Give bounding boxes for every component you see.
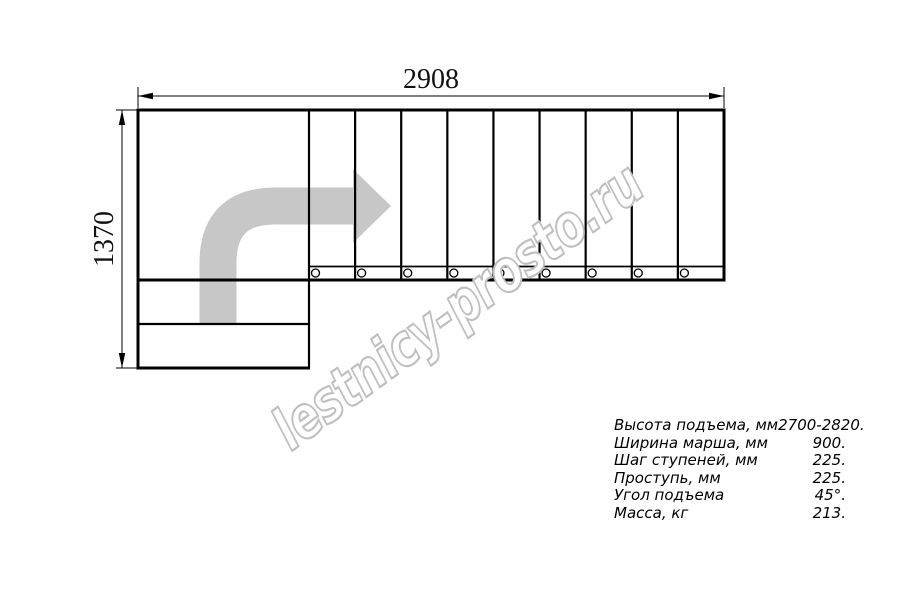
spec-label: Ширина марша, мм xyxy=(614,435,768,453)
baluster-circle xyxy=(680,269,688,277)
baluster-circle xyxy=(634,269,642,277)
spec-value: 225. xyxy=(813,470,846,488)
travel-arrow-shaft xyxy=(218,206,353,325)
spec-row: Ширина марша, мм 900. xyxy=(614,435,846,453)
height-dimension-label: 1370 xyxy=(89,211,120,267)
spec-value: 225. xyxy=(813,452,846,470)
spec-row: Шаг ступеней, мм 225. xyxy=(614,452,846,470)
baluster-circle xyxy=(404,269,412,277)
baluster-circle xyxy=(312,269,320,277)
travel-direction-arrow xyxy=(218,169,391,325)
spec-label: Масса, кг xyxy=(614,505,688,523)
spec-label: Проступь, мм xyxy=(614,470,721,488)
spec-table: Высота подъема, мм 2700-2820. Ширина мар… xyxy=(614,417,846,523)
spec-value: 213. xyxy=(813,505,846,523)
spec-value: 900. xyxy=(813,435,846,453)
spec-value: 2700-2820. xyxy=(778,417,865,435)
baluster-circle xyxy=(588,269,596,277)
baluster-circle xyxy=(358,269,366,277)
width-arrow-left xyxy=(138,93,153,99)
spec-row: Высота подъема, мм 2700-2820. xyxy=(614,417,846,435)
spec-row: Угол подъема 45°. xyxy=(614,487,846,505)
spec-value: 45°. xyxy=(815,487,846,505)
spec-label: Шаг ступеней, мм xyxy=(614,452,758,470)
spec-row: Масса, кг 213. xyxy=(614,505,846,523)
width-arrow-right xyxy=(709,93,724,99)
spec-label: Высота подъема, мм xyxy=(614,417,778,435)
spec-label: Угол подъема xyxy=(614,487,724,505)
travel-arrow-head xyxy=(353,169,391,243)
height-arrow-top xyxy=(119,110,125,125)
spec-row: Проступь, мм 225. xyxy=(614,470,846,488)
height-arrow-bottom xyxy=(119,353,125,368)
width-dimension-label: 2908 xyxy=(403,64,459,95)
blueprint-canvas: 2908 1370 lestnicy-prosto.ru Высота подъ… xyxy=(0,0,900,600)
